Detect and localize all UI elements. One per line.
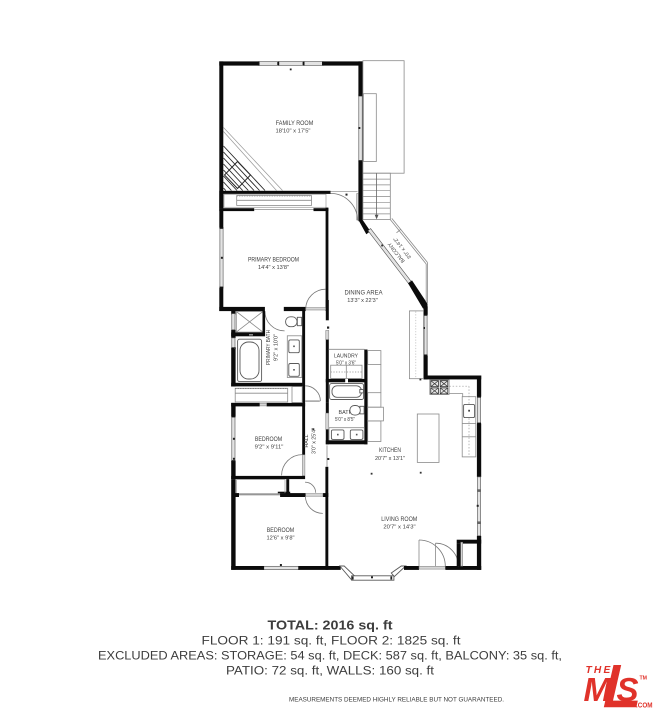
svg-text:13'3" x 22'3": 13'3" x 22'3" xyxy=(347,298,378,304)
svg-text:12'6" x 9'8": 12'6" x 9'8" xyxy=(267,535,295,541)
svg-text:FLOOR 1: 191 sq. ft, FLOOR 2:: FLOOR 1: 191 sq. ft, FLOOR 2: 1825 sq. f… xyxy=(202,634,462,648)
svg-text:LAUNDRY: LAUNDRY xyxy=(334,353,359,359)
svg-text:DINING AREA: DINING AREA xyxy=(345,290,384,297)
svg-text:BEDROOM: BEDROOM xyxy=(255,436,282,443)
svg-text:18'10" x 17'5": 18'10" x 17'5" xyxy=(276,128,311,134)
svg-text:20'7" x 13'1": 20'7" x 13'1" xyxy=(375,456,405,462)
svg-text:PRIMARY BEDROOM: PRIMARY BEDROOM xyxy=(248,256,299,263)
svg-text:5'0" x 8'5": 5'0" x 8'5" xyxy=(335,417,355,423)
svg-text:HALL: HALL xyxy=(304,434,310,447)
svg-text:MEASUREMENTS DEEMED HIGHLY REL: MEASUREMENTS DEEMED HIGHLY RELIABLE BUT … xyxy=(289,697,504,704)
svg-text:PRIMARY BATH: PRIMARY BATH xyxy=(266,330,272,365)
svg-text:PATIO: 72 sq. ft, WALLS: 160 s: PATIO: 72 sq. ft, WALLS: 160 sq. ft xyxy=(226,664,435,678)
svg-text:FAMILY ROOM: FAMILY ROOM xyxy=(276,120,314,127)
svg-text:TOTAL: 2016 sq. ft: TOTAL: 2016 sq. ft xyxy=(268,619,394,633)
svg-text:9'2" x 10'0": 9'2" x 10'0" xyxy=(274,334,280,361)
svg-text:3'0" x 25'4": 3'0" x 25'4" xyxy=(312,428,318,454)
svg-text:14'4" x 13'8": 14'4" x 13'8" xyxy=(258,265,289,271)
svg-text:EXCLUDED AREAS: STORAGE: 54 sq: EXCLUDED AREAS: STORAGE: 54 sq. ft, DECK… xyxy=(98,649,562,663)
svg-text:BEDROOM: BEDROOM xyxy=(267,527,295,534)
svg-text:9'2" x 9'11": 9'2" x 9'11" xyxy=(255,444,284,450)
svg-text:20'7" x 14'3": 20'7" x 14'3" xyxy=(383,524,415,530)
svg-text:.COM: .COM xyxy=(636,701,653,710)
svg-text:5'0" x 3'6": 5'0" x 3'6" xyxy=(336,360,356,366)
svg-text:KITCHEN: KITCHEN xyxy=(379,447,401,454)
svg-text:TM: TM xyxy=(640,676,648,682)
svg-text:LIVING ROOM: LIVING ROOM xyxy=(381,516,417,523)
